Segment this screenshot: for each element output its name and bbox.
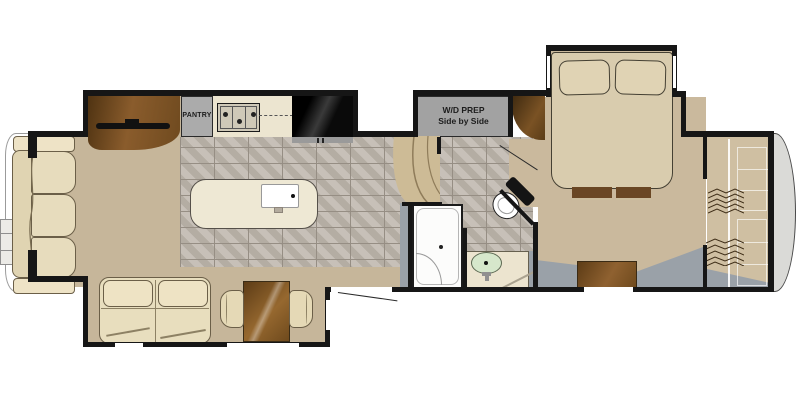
wall [353,90,358,137]
dining-chair-right [289,290,313,328]
bed-foot-cabinet [572,187,612,200]
wd-label: W/D PREP Side by Side [417,105,510,127]
wall-main-bottom [325,287,774,292]
window [326,300,330,330]
vanity-sink-drain [484,261,488,265]
wall-wd-top [413,90,511,96]
wall [28,131,88,137]
chair-left-line [226,294,227,324]
wall-closet-right [768,133,774,292]
window [584,287,633,292]
window [673,56,676,88]
theater-cushion-right [158,280,208,307]
rear-bumper-line [1,233,12,234]
island-faucet [274,207,283,213]
shower-drain [439,245,443,249]
wall [508,90,513,137]
wall [508,90,550,96]
wall-bath-left [408,202,412,292]
wall [353,131,418,137]
hangers-icon [708,188,744,214]
wardrobe [512,96,545,140]
counter-dashed-edge [259,115,293,116]
bed-foot-cabinet [616,187,651,200]
cooktop-grid-line [232,106,233,129]
pillow-left [559,59,611,95]
wall-bed-slide-top [546,45,677,51]
pantry: PANTRY [181,96,213,137]
burner [237,119,242,124]
wall-closet-left-upper [703,137,707,179]
dining-table [243,281,290,342]
wall [83,90,88,137]
burner [251,112,256,117]
cooktop [217,103,260,132]
window [115,343,143,347]
rear-bumper-line [1,250,12,251]
window [547,56,550,88]
wall-stub [437,137,441,154]
dresser [577,261,637,289]
burner [223,112,228,117]
dining-chair-left [220,290,244,328]
cooktop-grid-line [245,106,246,129]
theater-seam [101,308,209,309]
floorplan-canvas: PANTRY W/D PREP Side by Side [0,0,800,400]
chair-right-line [306,294,307,324]
entry-door-opening [331,287,392,292]
wd-label-line1: W/D PREP [417,105,510,116]
wall-closet-left-lower [703,245,707,292]
island-faucet-dot [291,194,295,198]
wall [83,276,88,347]
refrigerator-handle [317,138,319,143]
hangers-icon [706,238,744,266]
wall-closet-top [681,131,774,137]
window [227,343,299,347]
wall [28,276,88,282]
refrigerator-handle [322,138,324,143]
vanity-faucet [485,276,489,281]
wall-bath-bedroom [533,222,538,292]
pantry-label: PANTRY [182,112,212,119]
table-sheen [244,282,289,341]
wall-kitchen-slide-top [83,90,358,96]
wall [413,90,418,137]
wd-prep-cabinet: W/D PREP Side by Side [416,96,511,137]
front-cap [774,133,796,292]
wall-shower-vanity [463,228,467,290]
tv-stand [125,119,139,124]
curved-steps [384,136,440,208]
wd-label-line2: Side by Side [417,116,510,127]
shelf-line [738,169,768,170]
closet-rod [728,139,730,291]
cooktop-grid [220,106,257,129]
wall [28,131,37,158]
refrigerator [292,96,353,137]
theater-divider [155,280,156,342]
pillow-right [615,59,667,95]
entry-door-swing [338,292,398,301]
theater-cushion-left [103,280,153,307]
